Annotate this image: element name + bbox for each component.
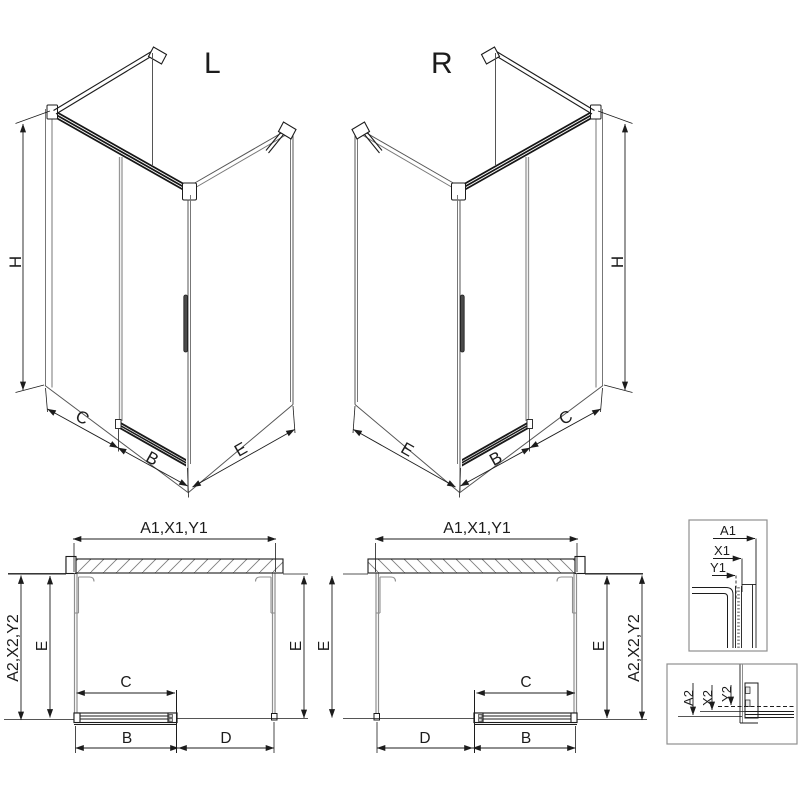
plan-right-dim-d: D — [377, 730, 473, 748]
plan-left-dim-c: C — [77, 674, 176, 693]
plan-left-dim-e-left-label: E — [34, 641, 51, 651]
plan-right-dim-top-label: A1,X1,Y1 — [443, 520, 511, 537]
detail-top-y1-label: Y1 — [710, 560, 726, 575]
detail-bottom-y2-label: Y2 — [719, 686, 734, 702]
iso-view-left: L H C B E — [6, 47, 296, 498]
plan-right-dim-e-left: E — [316, 576, 333, 718]
iso-left-dim-e-label: E — [231, 439, 250, 461]
iso-right-title: R — [431, 47, 453, 80]
iso-right-dim-h-label: H — [608, 256, 627, 268]
plan-left-dim-top: A1,X1,Y1 — [73, 520, 276, 539]
plan-right-dim-c-label: C — [520, 674, 531, 691]
detail-bottom-a2-label: A2 — [681, 690, 696, 706]
iso-left-title: L — [204, 47, 221, 80]
plan-right-dim-e-left-label: E — [316, 641, 333, 651]
technical-drawing-page: L H C B E R H C B E — [0, 0, 800, 800]
plan-view-left: A1,X1,Y1 A2,X2,Y2 E E C B D — [4, 520, 308, 753]
plan-right-dim-side-label: A2,X2,Y2 — [626, 614, 643, 682]
detail-box-bottom: A2 X2 Y2 — [667, 664, 797, 744]
iso-right-dim-h: H — [608, 124, 627, 390]
plan-right-dim-b-label: B — [521, 730, 531, 747]
iso-left-dim-b-label: B — [143, 448, 162, 470]
iso-left-dim-cb: C B — [48, 406, 188, 486]
iso-right-dim-b-label: B — [486, 448, 505, 470]
iso-view-right: R H C B E — [352, 47, 633, 498]
iso-left-dim-h-label: H — [6, 256, 25, 268]
plan-left-dim-b: B — [76, 730, 179, 748]
plan-left-dim-b-label: B — [122, 730, 132, 747]
detail-box-top: A1 X1 Y1 — [689, 520, 767, 651]
plan-left-dim-side: A2,X2,Y2 — [5, 576, 22, 721]
plan-left-dim-side-label: A2,X2,Y2 — [5, 614, 22, 682]
iso-right-dim-cb: C B — [461, 406, 601, 486]
plan-right-dim-side: A2,X2,Y2 — [626, 576, 643, 721]
detail-top-x1-label: X1 — [714, 543, 730, 558]
plan-left-dim-e-right-label: E — [288, 641, 305, 651]
plan-left-dim-e-left: E — [34, 576, 51, 718]
plan-right-dim-d-label: D — [419, 730, 430, 747]
plan-view-right: A1,X1,Y1 A2,X2,Y2 E E C D B — [316, 520, 647, 753]
plan-left-dim-top-label: A1,X1,Y1 — [140, 520, 208, 537]
plan-left-dim-e-right: E — [288, 576, 305, 718]
iso-right-dim-e: E — [354, 430, 456, 488]
iso-right-dim-c-label: C — [556, 406, 576, 429]
plan-right-dim-b: B — [473, 730, 576, 748]
plan-right-dim-top: A1,X1,Y1 — [375, 520, 578, 539]
plan-right-dim-c: C — [477, 674, 576, 693]
plan-left-dim-d-label: D — [220, 730, 231, 747]
iso-left-dim-c-label: C — [72, 406, 92, 429]
detail-top-a1-label: A1 — [720, 523, 736, 538]
iso-right-dim-e-label: E — [398, 439, 417, 461]
iso-left-dim-h: H — [6, 124, 25, 390]
plan-left-dim-d: D — [179, 730, 275, 748]
plan-right-dim-e-right-label: E — [591, 641, 608, 651]
iso-left-dim-e: E — [193, 430, 295, 488]
plan-right-dim-e-right: E — [591, 576, 608, 718]
detail-bottom-x2-label: X2 — [700, 690, 715, 706]
plan-left-dim-c-label: C — [120, 674, 131, 691]
shower-enclosure-drawing: L H C B E R H C B E — [0, 0, 800, 800]
